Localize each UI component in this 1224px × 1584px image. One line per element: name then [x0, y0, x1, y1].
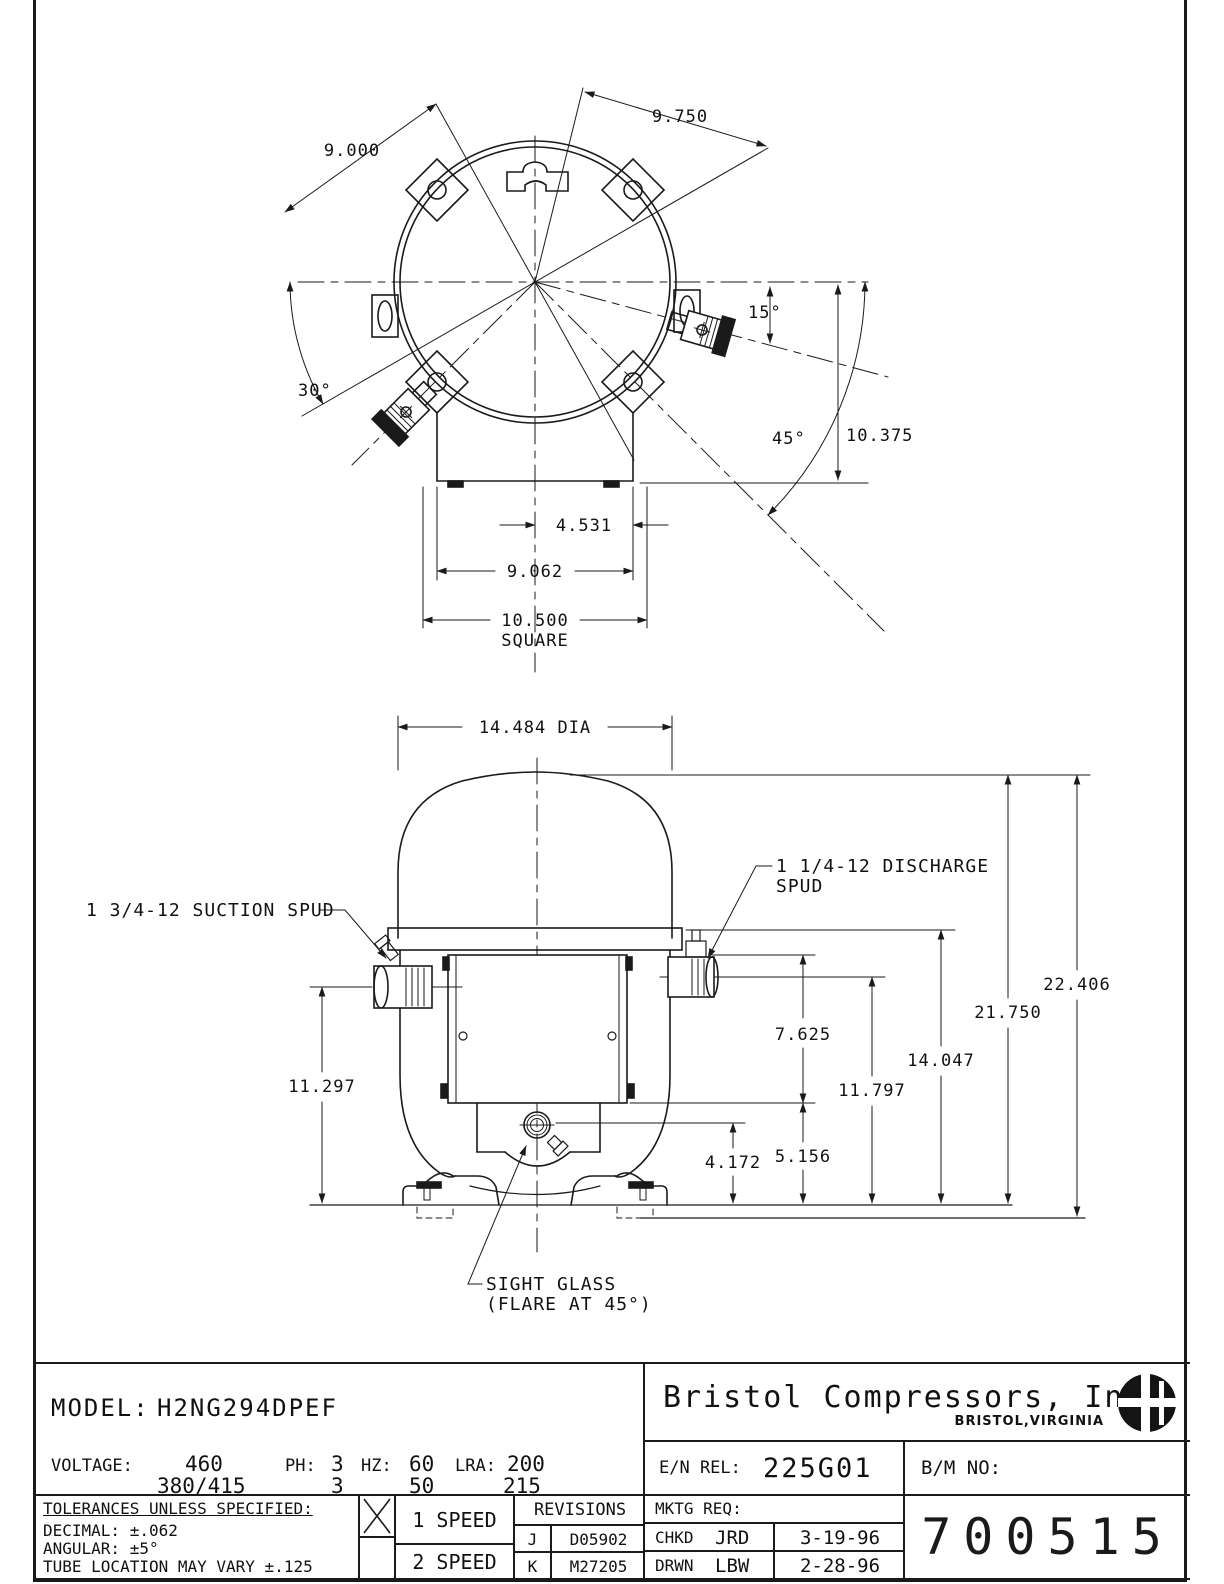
ph-2: 3: [331, 1474, 344, 1498]
bristol-logo-icon: [1118, 1374, 1176, 1432]
lra-label: LRA:: [455, 1456, 496, 1476]
hz-2: 50: [409, 1474, 434, 1498]
drwn-by: LBW: [715, 1555, 749, 1577]
mktg-req-label: MKTG REQ:: [655, 1500, 742, 1518]
hz-label: HZ:: [361, 1456, 392, 1476]
model-value: H2NG294DPEF: [157, 1394, 338, 1422]
drwn-date: 2-28-96: [800, 1555, 880, 1577]
chkd-by: JRD: [715, 1527, 749, 1549]
drwn-row: DRWN LBW 2-28-96: [645, 1552, 905, 1580]
ph-label: PH:: [285, 1456, 316, 1476]
revision-number: D05902: [570, 1531, 628, 1549]
chkd-date: 3-19-96: [800, 1527, 880, 1549]
tolerance-tube: TUBE LOCATION MAY VARY ±.125: [43, 1558, 313, 1576]
tolerances-cell: TOLERANCES UNLESS SPECIFIED: DECIMAL: ±.…: [35, 1496, 360, 1580]
voltage-label: VOLTAGE:: [51, 1456, 133, 1476]
company-name: Bristol Compressors, Inc: [663, 1380, 1144, 1415]
company-location: BRISTOL,VIRGINIA: [955, 1414, 1104, 1429]
revisions-cell: REVISIONS J D05902 K M27205: [515, 1496, 645, 1580]
en-rel-value: 225G01: [763, 1453, 873, 1484]
mktg-cell: MKTG REQ: CHKD JRD 3-19-96 DRWN LBW 2-28…: [645, 1496, 905, 1580]
drwn-label: DRWN: [655, 1557, 694, 1575]
title-block: MODEL: H2NG294DPEF VOLTAGE: 460 PH: 3 HZ…: [35, 1362, 1190, 1580]
logo-slot: [1159, 1381, 1164, 1425]
revision-number: M27205: [570, 1558, 628, 1576]
ph-1: 3: [331, 1452, 344, 1476]
revision-row: K M27205: [515, 1553, 645, 1580]
revision-letter: K: [528, 1558, 538, 1576]
model-label: MODEL:: [51, 1394, 150, 1422]
company-cell: Bristol Compressors, Inc BRISTOL,VIRGINI…: [645, 1362, 1190, 1442]
tolerances-heading: TOLERANCES UNLESS SPECIFIED:: [43, 1500, 313, 1518]
drawing-border-frame: [33, 0, 1187, 1582]
one-speed-checkbox: [360, 1496, 396, 1538]
en-rel-cell: E/N REL: 225G01: [645, 1442, 905, 1496]
one-speed-label: 1 SPEED: [412, 1508, 496, 1532]
lra-2: 215: [503, 1474, 541, 1498]
chkd-row: CHKD JRD 3-19-96: [645, 1524, 905, 1552]
logo-crossbar-v: [1141, 1374, 1150, 1432]
drawing-number-cell: 700515: [905, 1496, 1190, 1580]
revision-row: J D05902: [515, 1526, 645, 1553]
lra-1: 200: [507, 1452, 545, 1476]
two-speed-checkbox: [360, 1538, 396, 1580]
hz-1: 60: [409, 1452, 434, 1476]
revisions-heading: REVISIONS: [534, 1500, 626, 1520]
tolerance-decimal: DECIMAL: ±.062: [43, 1522, 178, 1540]
voltage-1: 460: [185, 1452, 223, 1476]
bm-no-label: B/M NO:: [921, 1457, 1001, 1479]
bm-no-cell: B/M NO:: [905, 1442, 1190, 1496]
revision-letter: J: [528, 1531, 538, 1549]
en-rel-label: E/N REL:: [659, 1458, 741, 1478]
two-speed-label-cell: 2 SPEED: [396, 1545, 515, 1580]
revisions-heading-cell: REVISIONS: [515, 1496, 645, 1526]
chkd-label: CHKD: [655, 1529, 694, 1547]
tolerance-angular: ANGULAR: ±5°: [43, 1540, 159, 1558]
two-speed-label: 2 SPEED: [412, 1550, 496, 1574]
model-cell: MODEL: H2NG294DPEF VOLTAGE: 460 PH: 3 HZ…: [35, 1362, 645, 1496]
checkbox-x-mark-icon: [362, 1497, 392, 1535]
drawing-number: 700515: [921, 1508, 1174, 1566]
voltage-2: 380/415: [157, 1474, 246, 1498]
one-speed-label-cell: 1 SPEED: [396, 1496, 515, 1545]
